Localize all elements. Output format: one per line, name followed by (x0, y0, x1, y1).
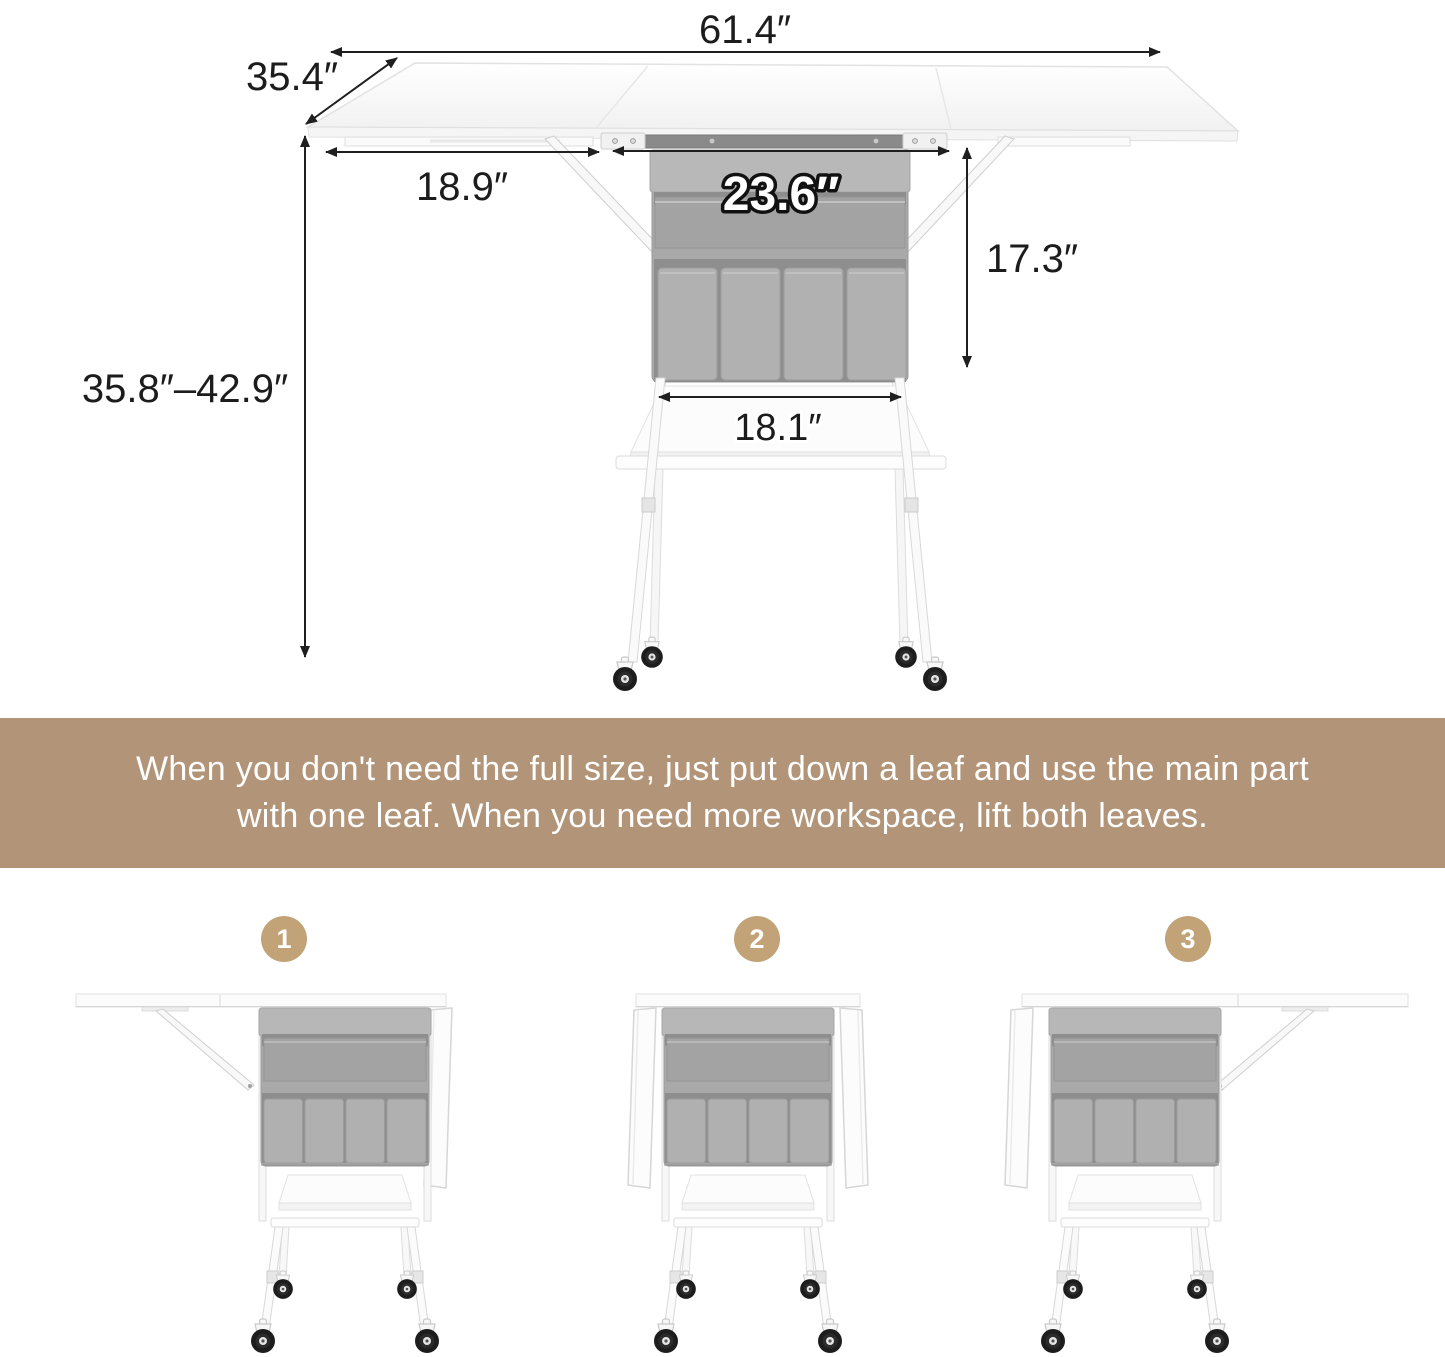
config-1-left-leaf-up (30, 975, 520, 1357)
dimension-label-organizer-height: 17.3″ (986, 237, 1078, 281)
product-infographic: 61.4″ 35.4″ 18.9″ 23.6″ 17.3″ 35.8″–42.9… (0, 0, 1445, 1357)
dimension-label-organizer-width: 23.6″ (723, 168, 839, 221)
table-cabinet (654, 1006, 842, 1353)
tabletop-main-only (636, 994, 860, 1007)
table-cabinet (1041, 1006, 1229, 1353)
tabletop (308, 63, 1238, 141)
step-number: 3 (1180, 924, 1195, 955)
dimension-label-height-range: 35.8″–42.9″ (82, 367, 288, 411)
description-banner: When you don't need the full size, just … (0, 718, 1445, 868)
left-support-strut (545, 136, 660, 252)
organizer-pocket (721, 268, 780, 380)
configurations-section: 1 2 3 (0, 868, 1445, 1357)
folded-right-leaf (840, 1008, 868, 1188)
organizer-pocket (658, 268, 717, 380)
tabletop-surface (308, 63, 1238, 131)
step-badge-2: 2 (734, 916, 780, 962)
dimension-label-depth: 35.4″ (246, 55, 338, 99)
caster-wheel (613, 657, 637, 691)
tabletop-with-right-leaf (1022, 994, 1408, 1007)
caster-wheel (895, 637, 917, 668)
table-cabinet (251, 1006, 439, 1353)
step-number: 2 (749, 924, 764, 955)
config-3-right-leaf-up (950, 975, 1420, 1357)
dimension-label-total-width: 61.4″ (699, 8, 791, 52)
tabletop-with-left-leaf (76, 994, 446, 1007)
banner-text-line: When you don't need the full size, just … (136, 746, 1309, 793)
leaf-support-strut (1216, 1009, 1314, 1090)
organizer-pocket (784, 268, 843, 380)
dimension-label-left-leaf: 18.9″ (416, 165, 508, 209)
step-badge-3: 3 (1165, 916, 1211, 962)
organizer-pocket (847, 268, 906, 380)
dimension-label-shelf-width: 18.1″ (734, 407, 821, 449)
right-support-strut (900, 136, 1014, 252)
step-number: 1 (276, 924, 291, 955)
dim-left-leaf-width: 18.9″ (326, 152, 599, 209)
dimension-diagram-section: 61.4″ 35.4″ 18.9″ 23.6″ 17.3″ 35.8″–42.9… (0, 0, 1445, 718)
dim-organizer-height: 17.3″ (967, 148, 1078, 367)
folded-left-leaf (628, 1008, 656, 1188)
banner-text-line: with one leaf. When you need more worksp… (237, 793, 1208, 840)
right-leaf-bracket (998, 137, 1130, 146)
folded-left-leaf (1005, 1008, 1033, 1188)
under-rail (605, 135, 945, 148)
table-dimension-diagram: 61.4″ 35.4″ 18.9″ 23.6″ 17.3″ 35.8″–42.9… (0, 0, 1445, 718)
step-badge-1: 1 (261, 916, 307, 962)
leaf-support-strut (156, 1009, 254, 1090)
dim-total-width: 61.4″ (331, 8, 1160, 52)
dim-height-range: 35.8″–42.9″ (82, 136, 305, 657)
config-2-both-leaves-down (508, 975, 958, 1357)
frame-bar (616, 456, 946, 469)
caster-wheel (923, 657, 947, 691)
caster-wheel (641, 637, 663, 668)
